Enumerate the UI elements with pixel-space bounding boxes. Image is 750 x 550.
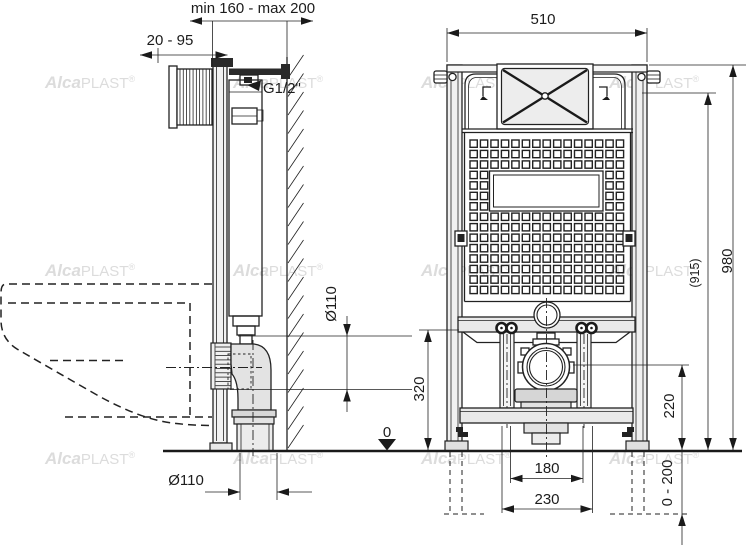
technical-drawing: AlcaPLAST®AlcaPLAST®AlcaPLAST®AlcaPLAST®… bbox=[0, 0, 750, 550]
dim-rail-height: 320 bbox=[411, 376, 428, 401]
wall-bracket-right bbox=[638, 71, 660, 83]
installation-frame-drawing: AlcaPLAST®AlcaPLAST®AlcaPLAST®AlcaPLAST®… bbox=[0, 0, 750, 550]
dim-outlet-diameter-bottom: Ø110 bbox=[168, 472, 204, 489]
wc-connector-stub bbox=[211, 343, 231, 389]
dim-outlet-diameter: Ø110 bbox=[323, 286, 340, 322]
watermark: AlcaPLAST® bbox=[44, 449, 135, 468]
frame-profile-left bbox=[447, 65, 462, 443]
wall-bracket-left bbox=[434, 71, 456, 83]
inspection-shaft-plate bbox=[497, 64, 593, 129]
watermark: AlcaPLAST® bbox=[44, 261, 135, 280]
dim-floor-datum: 0 bbox=[383, 424, 391, 441]
watermark: AlcaPLAST® bbox=[44, 73, 135, 92]
top-bracket bbox=[211, 58, 233, 67]
dim-water-connection: G1/2" bbox=[263, 80, 301, 97]
adjustable-foot-left bbox=[445, 441, 468, 451]
water-inlet-connection bbox=[534, 302, 560, 328]
dim-shaft-range: 20 - 95 bbox=[147, 32, 194, 49]
watermark: AlcaPLAST® bbox=[608, 261, 699, 280]
floor-drain-pipe bbox=[237, 424, 273, 451]
pipe-coupling bbox=[232, 410, 276, 417]
frame-profile-right bbox=[632, 65, 647, 443]
profile-clamp-right bbox=[623, 231, 635, 246]
dim-depth-range: min 160 - max 200 bbox=[191, 0, 315, 17]
dim-feet-adjustment: 0 - 200 bbox=[659, 460, 676, 507]
dim-bolt-spacing-inner: 180 bbox=[534, 460, 559, 477]
access-shaft-bellows bbox=[169, 66, 212, 128]
flush-plate-opening bbox=[490, 171, 604, 211]
wall-anchor bbox=[281, 64, 290, 79]
dim-outlet-axis-height: 220 bbox=[661, 393, 678, 418]
dim-frame-height: 980 bbox=[719, 248, 736, 273]
dim-frame-width: 510 bbox=[530, 11, 555, 28]
watermark: AlcaPLAST® bbox=[232, 261, 323, 280]
adjustable-foot-right bbox=[626, 441, 649, 451]
water-supply-pipe bbox=[229, 69, 289, 76]
profile-clamp-left bbox=[455, 231, 467, 246]
dim-frame-height-secondary: (915) bbox=[688, 258, 702, 287]
dim-bolt-spacing-outer: 230 bbox=[534, 491, 559, 508]
